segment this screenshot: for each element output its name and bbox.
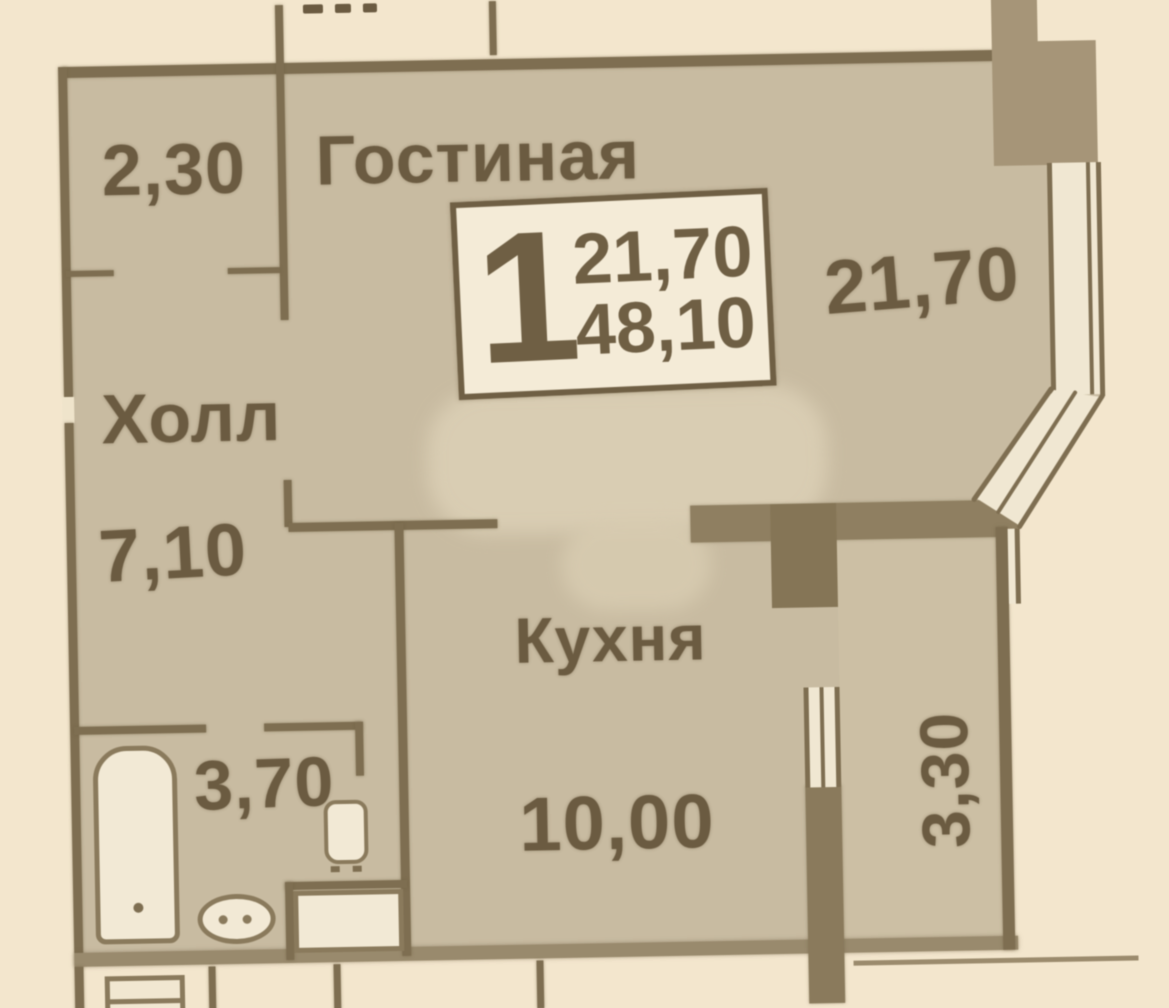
hall-area-label: 7,10 [97,512,249,594]
upper-unit-wall-fragment [489,1,497,55]
bathroom-area-label: 3,70 [193,746,336,821]
lower-unit-wall-left [74,967,84,1008]
kitchen-name-label: Кухня [514,605,707,673]
bathtub-drain [133,903,143,913]
room-count: 1 [473,220,577,377]
lower-unit-wall-3 [536,960,544,1008]
lower-unit-wall-2 [333,964,341,1008]
lower-unit-wall-1 [208,966,216,1008]
floor-plan-scan: 2,30 Гостиная 21,70 Холл 7,10 Кухня 10,0… [0,0,1169,1008]
kitchen-area-label: 10,00 [519,784,716,864]
info-total-area: 48,10 [574,287,757,366]
apartment-info-box: 1 21,70 48,10 [450,188,777,400]
lower-unit-door-box [105,975,186,1008]
floor-plan: 2,30 Гостиная 21,70 Холл 7,10 Кухня 10,0… [0,0,1169,1008]
hall-closet-width-label: 2,30 [101,133,246,208]
cropped-label-fragment [363,3,377,12]
cropped-label-fragment [335,4,351,13]
bathroom-cabinet [293,889,404,953]
living-room-area-label: 21,70 [822,236,1023,327]
bathtub [92,745,180,945]
hall-name-label: Холл [101,381,282,454]
living-room-name-label: Гостиная [315,119,641,195]
cropped-label-fragment [303,4,323,13]
toilet-hinge-marks [331,866,365,873]
loggia-area-label: 3,30 [910,711,980,849]
